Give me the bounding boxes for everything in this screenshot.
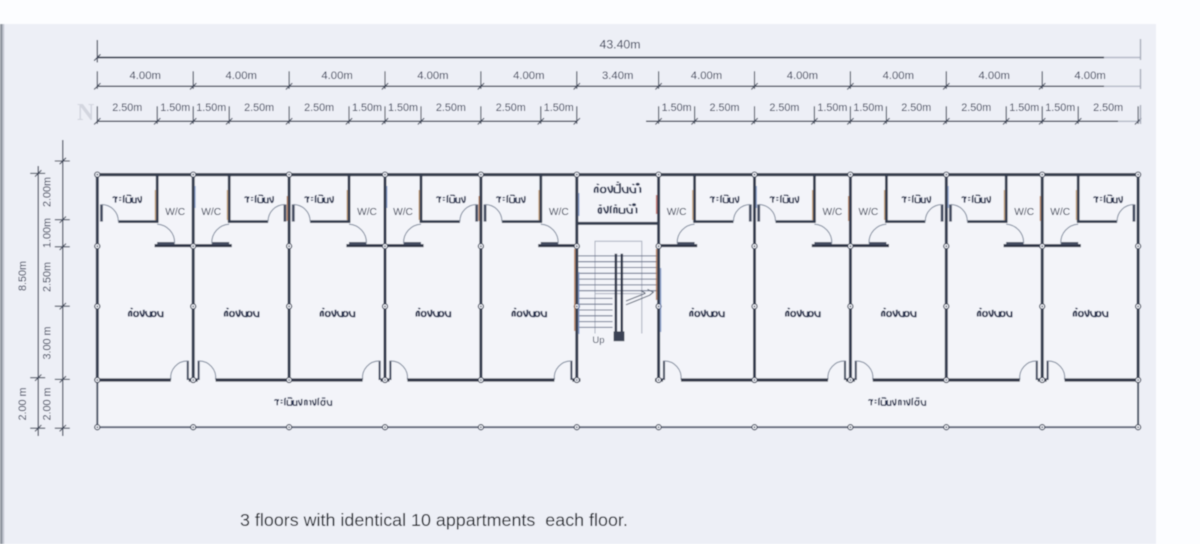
svg-text:1.50m: 1.50m (544, 102, 574, 114)
svg-text:3.40m: 3.40m (602, 70, 633, 82)
svg-text:4.00m: 4.00m (1074, 70, 1105, 82)
svg-text:2.00 m: 2.00 m (42, 387, 54, 420)
svg-text:W/C: W/C (201, 207, 221, 218)
svg-text:2.00 m: 2.00 m (17, 387, 29, 420)
svg-text:W/C: W/C (822, 207, 842, 218)
svg-text:2.50m: 2.50m (961, 102, 991, 114)
svg-text:Up: Up (592, 335, 604, 346)
svg-text:1.50m: 1.50m (853, 102, 883, 114)
svg-text:3 floors with identical 10 app: 3 floors with identical 10 appartments e… (240, 510, 628, 530)
svg-text:2.50m: 2.50m (1093, 102, 1123, 114)
svg-text:43.40m: 43.40m (599, 38, 640, 52)
svg-text:2.50m: 2.50m (901, 102, 931, 114)
svg-text:1.50m: 1.50m (352, 102, 382, 114)
svg-text:W/C: W/C (1050, 207, 1070, 218)
svg-text:4.00m: 4.00m (129, 70, 160, 82)
svg-text:W/C: W/C (549, 207, 569, 218)
svg-text:W/C: W/C (1014, 207, 1034, 218)
svg-text:2.50m: 2.50m (769, 102, 799, 114)
svg-text:3.00 m: 3.00 m (42, 326, 54, 359)
svg-text:2.50m: 2.50m (496, 102, 526, 114)
svg-text:2.50m: 2.50m (244, 102, 274, 114)
svg-text:2.50m: 2.50m (112, 102, 142, 114)
svg-text:N: N (77, 100, 95, 126)
svg-text:4.00m: 4.00m (513, 70, 544, 82)
svg-text:W/C: W/C (357, 207, 377, 218)
svg-text:1.50m: 1.50m (160, 102, 190, 114)
svg-text:1.00m: 1.00m (42, 218, 54, 248)
svg-text:4.00m: 4.00m (417, 70, 448, 82)
svg-text:1.50m: 1.50m (662, 102, 692, 114)
svg-text:1.50m: 1.50m (817, 102, 847, 114)
svg-text:1.50m: 1.50m (388, 102, 418, 114)
svg-text:4.00m: 4.00m (883, 70, 914, 82)
svg-text:2.50m: 2.50m (304, 102, 334, 114)
svg-text:1.50m: 1.50m (1045, 102, 1075, 114)
svg-text:W/C: W/C (165, 207, 185, 218)
svg-text:2.00m: 2.00m (42, 177, 54, 207)
svg-text:4.00m: 4.00m (787, 70, 818, 82)
svg-text:W/C: W/C (667, 207, 687, 218)
svg-text:W/C: W/C (393, 207, 413, 218)
svg-text:4.00m: 4.00m (691, 70, 722, 82)
svg-text:2.50m: 2.50m (709, 102, 739, 114)
svg-text:8.50m: 8.50m (17, 261, 29, 291)
svg-text:1.50m: 1.50m (196, 102, 226, 114)
svg-text:1.50m: 1.50m (1009, 102, 1039, 114)
svg-text:W/C: W/C (858, 207, 878, 218)
svg-text:2.50m: 2.50m (436, 102, 466, 114)
svg-text:4.00m: 4.00m (321, 70, 352, 82)
svg-text:4.00m: 4.00m (225, 70, 256, 82)
svg-text:4.00m: 4.00m (978, 70, 1009, 82)
svg-text:2.50m: 2.50m (42, 262, 54, 292)
